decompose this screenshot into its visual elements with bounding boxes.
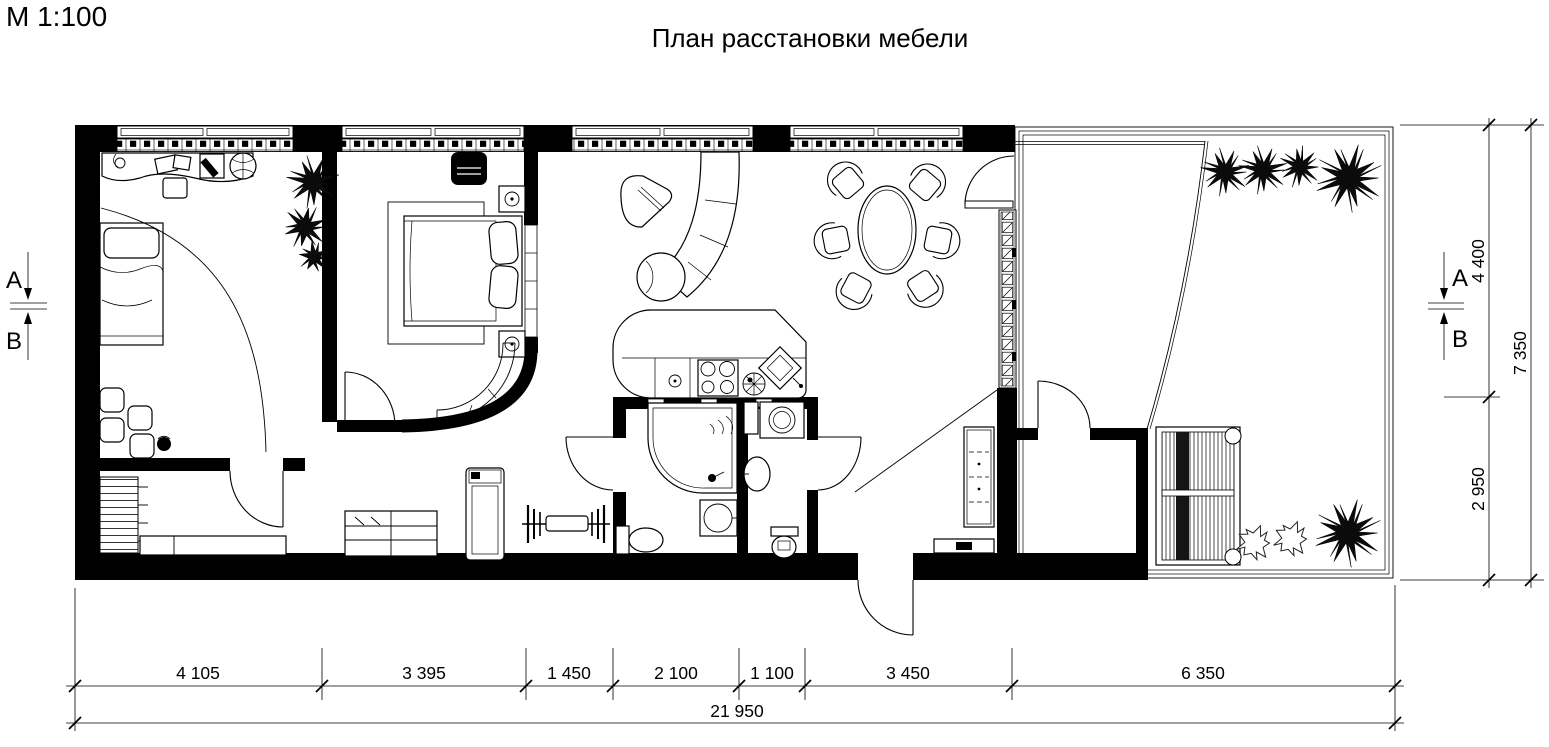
dim-label: 2 100: [654, 663, 698, 683]
low-cabinet: [140, 536, 286, 555]
door-entry: [858, 580, 913, 635]
dim-label: 1 450: [547, 663, 591, 683]
dim-label: 6 350: [1181, 663, 1225, 683]
terrace: [1015, 127, 1393, 578]
living-dining: [613, 152, 963, 398]
scale-label: М 1:100: [6, 1, 107, 32]
nightstand: [499, 186, 525, 212]
window: [572, 126, 753, 152]
dim-total-label: 21 950: [710, 701, 764, 721]
door-winter-garden: [965, 156, 1014, 208]
plant-icon: [285, 207, 325, 246]
door-bedroom-2: [345, 372, 395, 426]
dim-label: 4 400: [1468, 239, 1488, 283]
treadmill: [466, 468, 504, 560]
entry-corridor: [855, 390, 997, 553]
arrow-down-icon: [24, 288, 32, 300]
door-sauna: [1038, 381, 1090, 428]
round-chair: [637, 253, 685, 301]
dimension-chain-bottom: 4 105 3 395 1 450 2 100 1 100 3 450 6 35…: [66, 585, 1404, 731]
section-label-b: B: [6, 328, 22, 355]
weight-bench: [522, 505, 610, 543]
bedroom-1: [100, 153, 339, 458]
section-marker-left: A B: [6, 252, 47, 360]
window: [342, 126, 524, 152]
washing-machine: [760, 402, 804, 438]
dim-label: 3 450: [886, 663, 930, 683]
shoe-cabinet: [934, 539, 994, 553]
floor-cushions: [100, 388, 171, 458]
bathroom-2: [744, 402, 804, 558]
shower: [648, 403, 737, 493]
washbasin: [744, 457, 770, 491]
dim-label: 3 395: [402, 663, 446, 683]
floor-plan-svg: 4 105 3 395 1 450 2 100 1 100 3 450 6 35…: [0, 0, 1549, 747]
door-bedroom-1: [230, 471, 283, 527]
dim-label: 1 100: [750, 663, 794, 683]
plant-icon: [1317, 145, 1381, 213]
cabinet-tall: [744, 402, 758, 434]
window: [790, 126, 963, 152]
gym-area: [345, 468, 610, 560]
plant-icon: [1280, 146, 1318, 188]
shelf-rack: [345, 511, 437, 556]
bedroom-2: [388, 152, 525, 421]
dim-total-label: 7 350: [1510, 331, 1530, 375]
bathroom-1: [616, 403, 737, 554]
kitchen-island: [613, 310, 806, 398]
sun-lounger: [1156, 427, 1241, 565]
builtin-closet: [525, 225, 537, 337]
glass-block-partition: [999, 210, 1016, 388]
window: [117, 126, 293, 152]
section-label-a: A: [1452, 265, 1468, 292]
dim-label: 2 950: [1468, 467, 1488, 511]
dimension-chain-right: 4 400 2 950 7 350: [1400, 118, 1544, 588]
desk-chair: [163, 178, 187, 198]
drawing-sheet: 4 105 3 395 1 450 2 100 1 100 3 450 6 35…: [0, 0, 1549, 747]
flower-icon: [1274, 522, 1307, 556]
kettlebell-icon: [157, 437, 171, 451]
dining-table: [858, 186, 916, 274]
flower-icon: [1237, 526, 1270, 560]
arrow-up-icon: [24, 312, 32, 324]
ball-icon: [230, 153, 256, 179]
section-label-a: A: [6, 267, 22, 294]
stove-icon: [698, 360, 738, 396]
wardrobe-room: [100, 477, 286, 555]
door-bathroom-2: [818, 437, 861, 490]
sauna-door-opening: [1038, 428, 1090, 440]
section-label-b: B: [1452, 326, 1468, 353]
dim-label: 4 105: [176, 663, 220, 683]
bed-double: [404, 216, 522, 326]
plant-icon: [1316, 500, 1380, 568]
bed-single: [100, 223, 163, 345]
plant-icon: [1201, 148, 1249, 196]
sofa-curved: [637, 152, 739, 301]
wardrobe-rack: [100, 477, 138, 553]
toilet: [616, 526, 663, 554]
toilet: [771, 527, 798, 558]
door-bathroom-1: [566, 437, 613, 490]
arrow-down-icon: [1440, 288, 1448, 300]
plant-icon: [1239, 146, 1287, 194]
console-radiator: [964, 427, 994, 527]
coffee-table: [621, 176, 672, 227]
book-icon: [173, 155, 191, 170]
arrow-up-icon: [1440, 312, 1448, 324]
washbasin: [700, 500, 737, 536]
dining-set: [811, 155, 963, 316]
spice-wheel-icon: [743, 373, 765, 395]
section-marker-right: A B: [1428, 252, 1468, 360]
page-title: План расстановки мебели: [652, 23, 969, 53]
curved-glazing: [1147, 141, 1205, 429]
